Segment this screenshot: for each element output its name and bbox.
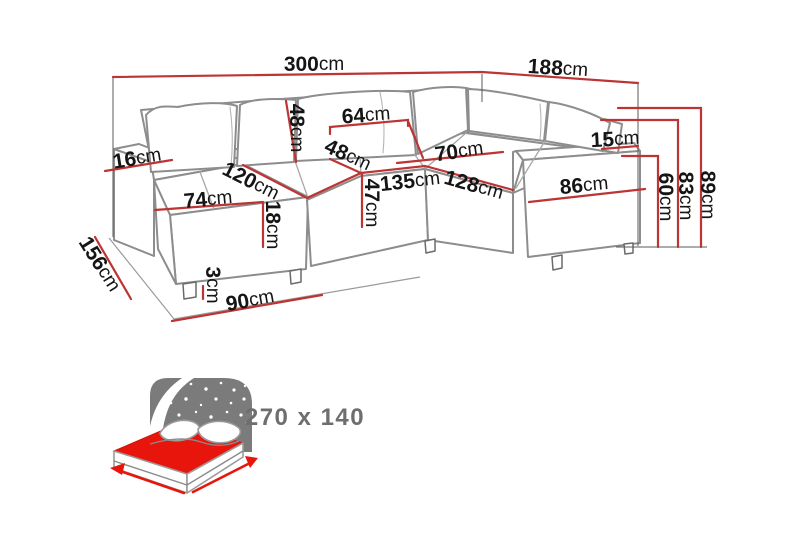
sofa-leg-4 <box>552 255 562 270</box>
bed-size-label: 270 x 140 <box>245 404 365 431</box>
dim-chaise-floor-length: 90cm <box>224 284 276 315</box>
dim-armrest-height: 60cm <box>655 173 678 222</box>
sleep-function-icon <box>110 378 258 493</box>
dim-right-armrest-width: 15cm <box>590 126 640 152</box>
dim-backrest-height: 83cm <box>675 172 698 221</box>
diagram-svg: 300cm 188cm 48cm 64cm 16cm 48cm 120cm 74… <box>0 0 800 533</box>
dim-back-cushion-width: 64cm <box>341 102 391 128</box>
dim-right-depth: 188cm <box>527 54 589 81</box>
dim-total-height: 89cm <box>697 171 720 220</box>
sofa-leg-5 <box>624 243 633 254</box>
dim-chaise-cushion-height: 18cm <box>262 201 285 250</box>
dim-seat-height: 47cm <box>361 179 384 228</box>
bed-length-arrow-head <box>245 456 258 468</box>
dim-back-cushion-height: 48cm <box>286 104 309 153</box>
back-pillow-5 <box>468 89 548 141</box>
sofa-leg-1 <box>183 282 196 299</box>
sofa-leg-3 <box>425 239 435 253</box>
dim-total-width: 300cm <box>284 53 344 76</box>
right-armrest-outer-face <box>523 151 640 257</box>
sofa-dimension-diagram: 300cm 188cm 48cm 64cm 16cm 48cm 120cm 74… <box>0 0 800 533</box>
sofa-leg-2 <box>290 269 301 284</box>
dim-leg-height: 3cm <box>202 266 225 303</box>
